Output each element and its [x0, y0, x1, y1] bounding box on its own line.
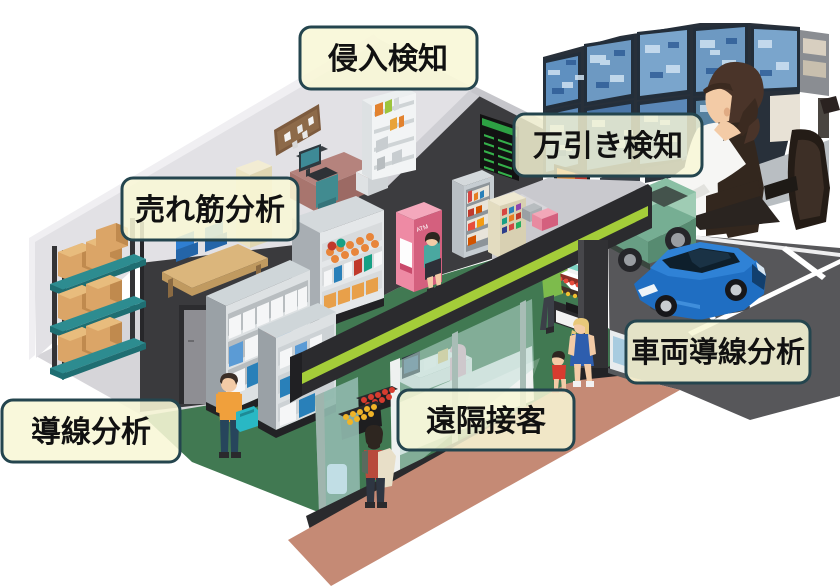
svg-text:導線分析: 導線分析	[31, 415, 151, 449]
svg-text:侵入検知: 侵入検知	[327, 43, 448, 76]
svg-text:車両導線分析: 車両導線分析	[631, 335, 805, 369]
svg-text:遠隔接客: 遠隔接客	[426, 404, 546, 438]
svg-text:売れ筋分析: 売れ筋分析	[135, 194, 285, 227]
svg-text:万引き検知: 万引き検知	[533, 130, 683, 163]
